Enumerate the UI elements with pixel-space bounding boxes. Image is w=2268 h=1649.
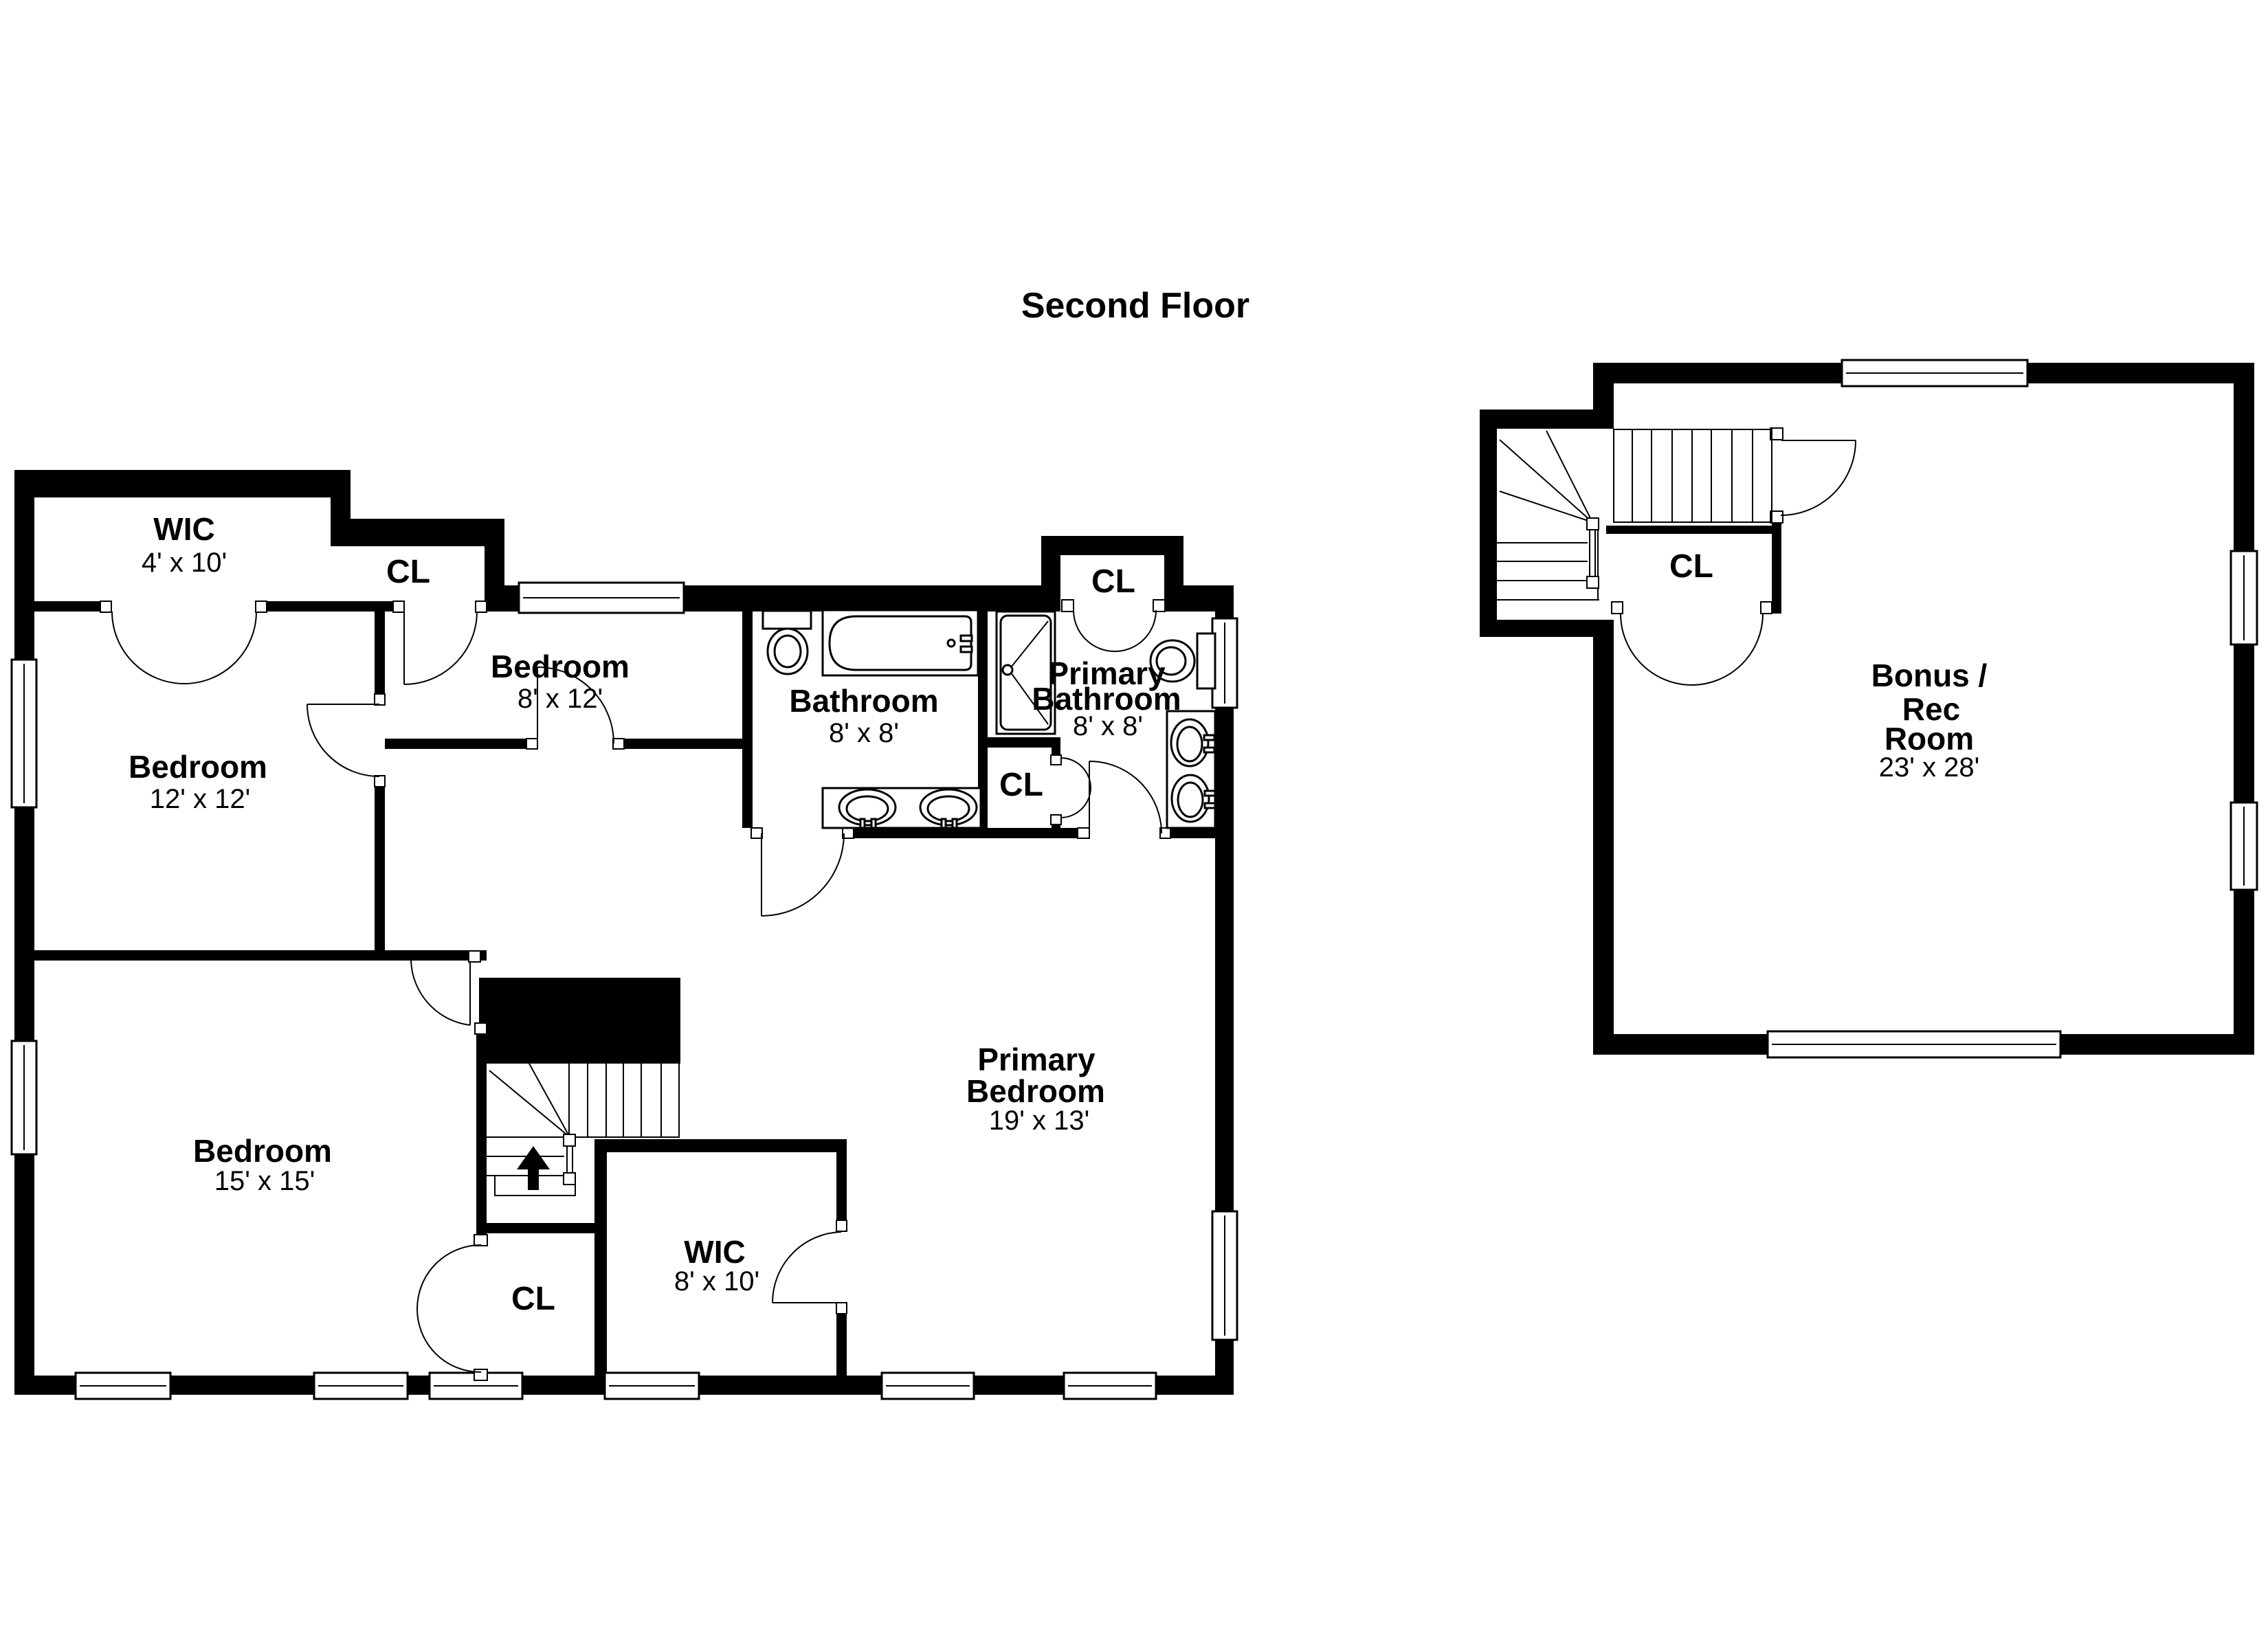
floor-plan-page: WIC 4' x 10' CL Bedroom 12' x 12' Bedroo… bbox=[0, 0, 2268, 1649]
window-icon bbox=[314, 1373, 408, 1399]
stairs bbox=[1497, 429, 1772, 600]
window-icon bbox=[1768, 1031, 2060, 1057]
room-dims-bedroom-12: 12' x 12' bbox=[150, 784, 250, 814]
toilet-icon bbox=[763, 611, 811, 674]
room-label-bedroom-8: Bedroom bbox=[491, 649, 630, 684]
room-label-bedroom-15: Bedroom bbox=[193, 1133, 332, 1169]
window-icon bbox=[1064, 1373, 1156, 1399]
doors bbox=[1621, 440, 1856, 685]
room-dims-bathroom: 8' x 8' bbox=[829, 718, 899, 748]
small-cl-bifold-arc bbox=[1060, 758, 1091, 818]
stair-treads bbox=[487, 1064, 679, 1196]
window-icon bbox=[1212, 1211, 1237, 1340]
stair-railing bbox=[1587, 518, 1599, 588]
room-dims-bedroom-15: 15' x 15' bbox=[214, 1166, 315, 1196]
door-arc bbox=[411, 961, 470, 1025]
window-icon bbox=[1842, 360, 2027, 386]
room-label-wic-bottom: WIC bbox=[684, 1234, 745, 1270]
door-arc bbox=[404, 612, 477, 684]
room-label-cl-small: CL bbox=[999, 767, 1043, 803]
room-label-primary-bedroom-2: Bedroom bbox=[966, 1073, 1105, 1109]
room-dims-wic-bottom: 8' x 10' bbox=[674, 1266, 759, 1297]
door-jambs bbox=[1612, 428, 1783, 614]
walls bbox=[1480, 363, 2254, 1055]
room-label-bathroom: Bathroom bbox=[789, 683, 938, 719]
vanity-sinks-icon bbox=[823, 788, 981, 828]
door-arc bbox=[772, 1232, 841, 1303]
stair-railing bbox=[564, 1134, 575, 1185]
window-icon bbox=[2231, 551, 2257, 644]
room-dims-primary-bedroom: 19' x 13' bbox=[989, 1106, 1089, 1136]
room-label-bonus-3: Room bbox=[1885, 721, 1974, 756]
double-door-arc bbox=[1621, 614, 1763, 685]
window-icon bbox=[12, 1041, 36, 1154]
double-door-arc bbox=[112, 612, 256, 684]
room-dims-wic-top: 4' x 10' bbox=[142, 548, 227, 578]
room-label-wic-top: WIC bbox=[153, 511, 214, 547]
room-label-bonus-1: Bonus / bbox=[1871, 658, 1988, 693]
room-label-cl-bottom: CL bbox=[511, 1281, 555, 1317]
up-arrow-icon bbox=[517, 1146, 550, 1190]
double-door-arc bbox=[417, 1245, 481, 1372]
stairs bbox=[487, 1064, 679, 1196]
door-arc bbox=[307, 704, 379, 776]
room-dims-primary-bathroom: 8' x 8' bbox=[1073, 711, 1143, 741]
window-icon bbox=[12, 660, 36, 807]
vanity-sinks-icon bbox=[1167, 711, 1215, 828]
window-icon bbox=[882, 1373, 974, 1399]
floor-plan-drawing: WIC 4' x 10' CL Bedroom 12' x 12' Bedroo… bbox=[0, 0, 2268, 1649]
door-arc bbox=[1089, 761, 1161, 833]
room-label-cl-top: CL bbox=[386, 554, 430, 590]
floor-title: Second Floor bbox=[1021, 286, 1249, 326]
window-icon bbox=[605, 1373, 699, 1399]
room-label-bedroom-12: Bedroom bbox=[129, 749, 267, 785]
window-icon bbox=[519, 583, 684, 613]
room-dims-bonus: 23' x 28' bbox=[1879, 752, 1979, 783]
room-label-cl-primary: CL bbox=[1091, 563, 1135, 600]
window-icon bbox=[76, 1373, 170, 1399]
room-label-primary-bedroom-1: Primary bbox=[977, 1042, 1096, 1077]
bathtub-icon bbox=[823, 610, 978, 675]
room-label-cl-bonus: CL bbox=[1669, 548, 1713, 585]
window-icon bbox=[2231, 803, 2257, 890]
windows bbox=[1768, 360, 2257, 1057]
main-building: WIC 4' x 10' CL Bedroom 12' x 12' Bedroo… bbox=[12, 470, 1237, 1399]
door-arc bbox=[1781, 440, 1856, 515]
double-door-arc bbox=[1074, 610, 1156, 651]
room-dims-bedroom-8: 8' x 12' bbox=[518, 684, 603, 714]
stair-treads bbox=[1497, 429, 1772, 600]
room-labels: CL Bonus / Rec Room 23' x 28' bbox=[1669, 548, 1988, 783]
bonus-building: CL Bonus / Rec Room 23' x 28' bbox=[1480, 360, 2257, 1057]
door-arc bbox=[761, 833, 844, 916]
